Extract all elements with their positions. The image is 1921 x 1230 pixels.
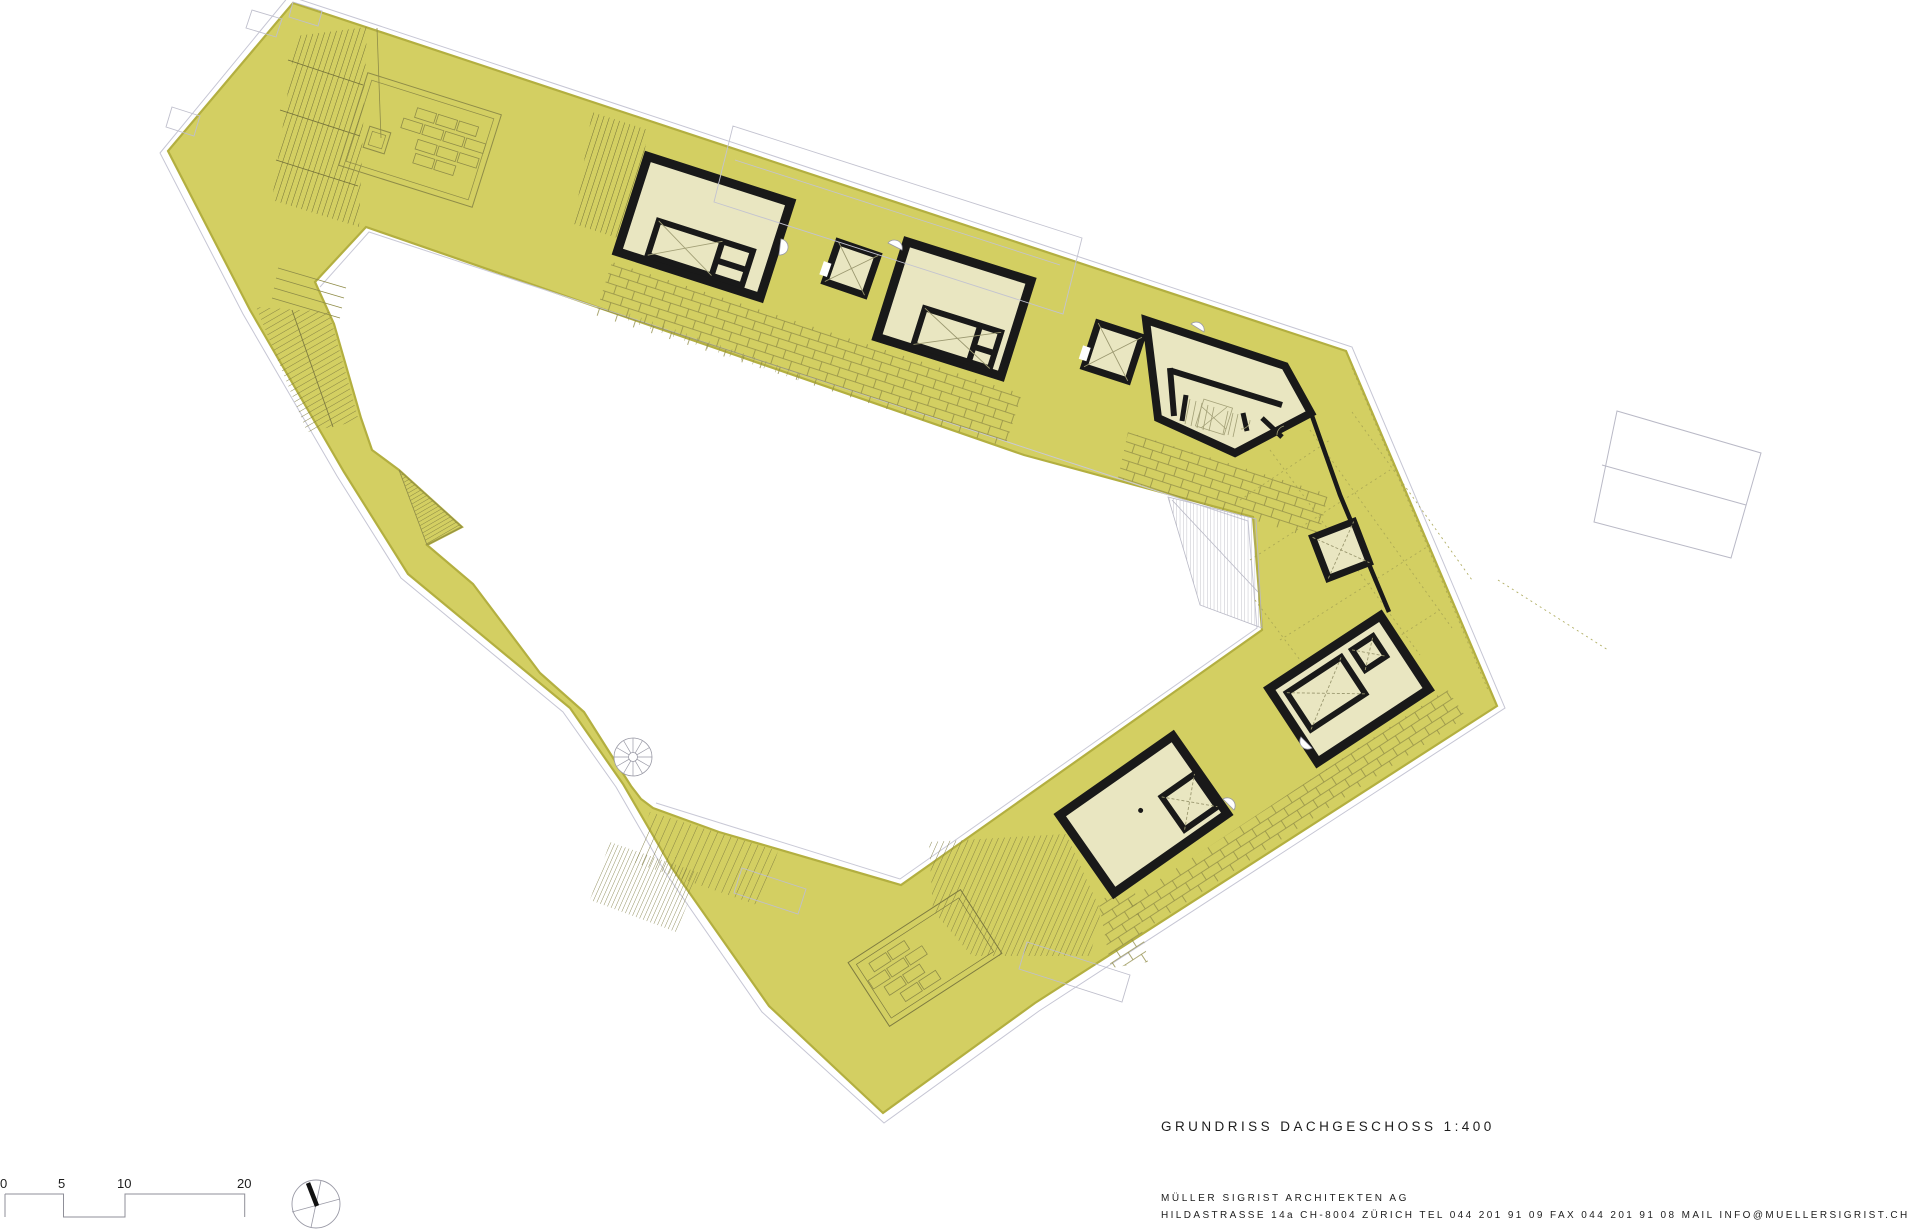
- svg-text:5: 5: [58, 1176, 65, 1191]
- svg-text:GRUNDRISS DACHGESCHOSS 1:400: GRUNDRISS DACHGESCHOSS 1:400: [1161, 1119, 1495, 1134]
- svg-text:MÜLLER SIGRIST ARCHITEKTEN AG: MÜLLER SIGRIST ARCHITEKTEN AG: [1161, 1192, 1409, 1204]
- svg-text:HILDASTRASSE 14a CH-8004 ZÜRIC: HILDASTRASSE 14a CH-8004 ZÜRICH TEL 044 …: [1161, 1209, 1910, 1221]
- svg-text:0: 0: [0, 1176, 7, 1191]
- svg-text:10: 10: [117, 1176, 131, 1191]
- svg-text:20: 20: [237, 1176, 251, 1191]
